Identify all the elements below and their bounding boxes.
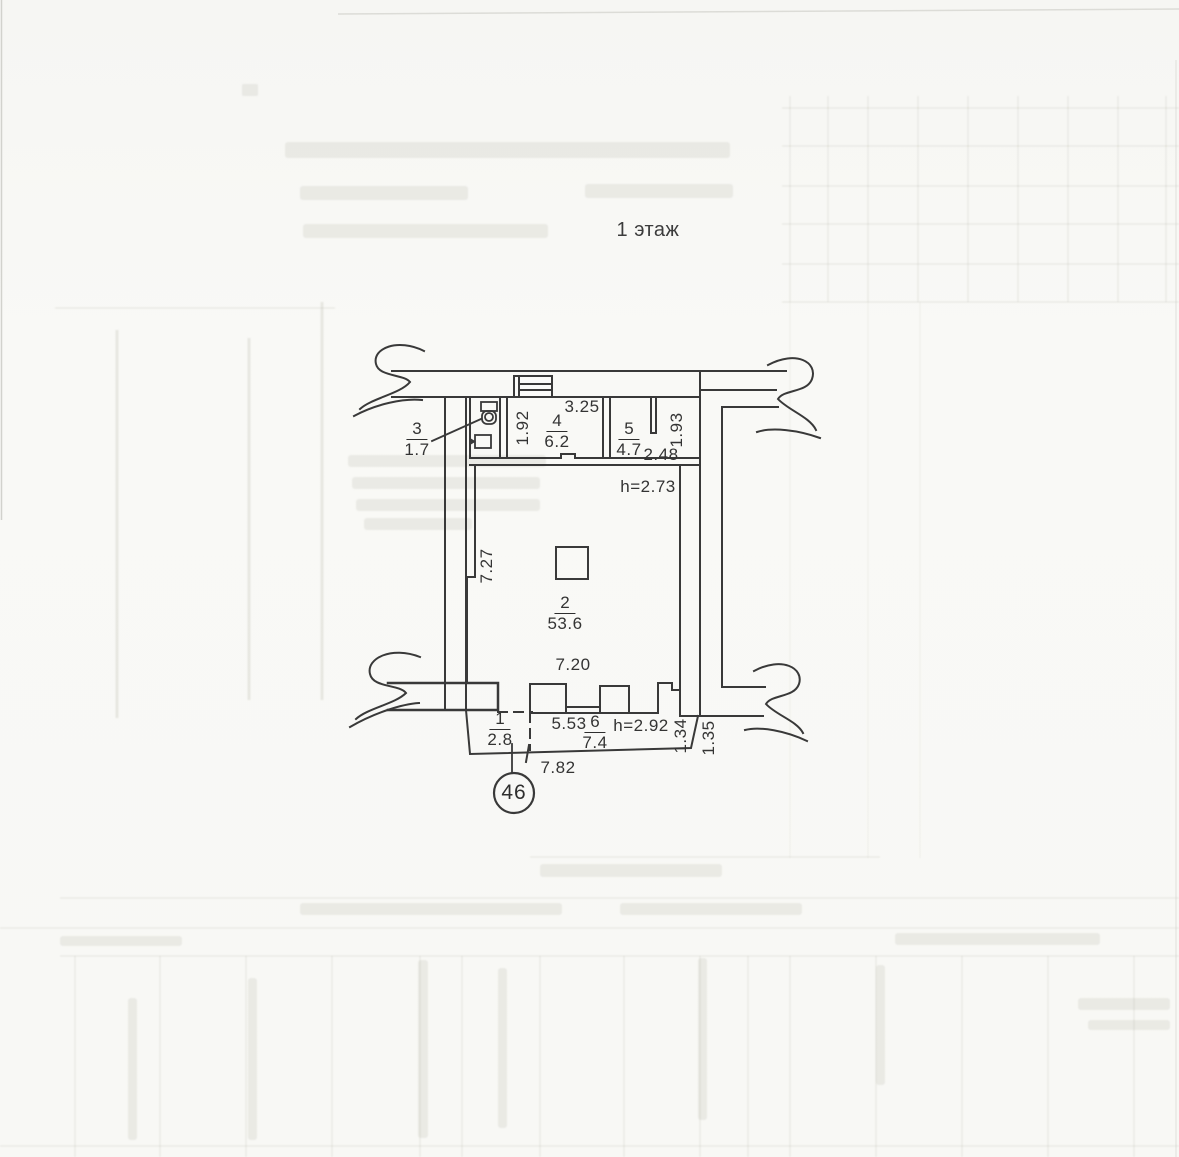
room-2-label: 2 53.6 xyxy=(547,594,582,633)
dim-3-25: 3.25 xyxy=(564,397,599,417)
dim-2-48: 2.48 xyxy=(643,445,678,465)
dim-5-53: 5.53 xyxy=(551,714,586,734)
floor-title: 1 этаж xyxy=(617,219,680,242)
dim-7-82: 7.82 xyxy=(540,758,575,778)
room-2-number: 2 xyxy=(554,594,575,614)
room-2-area: 53.6 xyxy=(547,614,582,634)
room-1-number: 1 xyxy=(489,710,510,730)
bleedthrough-grid xyxy=(0,96,1179,1157)
pillar-symbol xyxy=(556,547,588,579)
plan-linework xyxy=(0,0,1179,1157)
dim-1-35: 1.35 xyxy=(699,720,719,755)
apartment-badge-number: 46 xyxy=(501,781,526,805)
dim-1-92: 1.92 xyxy=(513,410,533,445)
room-3-label: 3 1.7 xyxy=(404,420,429,459)
room-5-number: 5 xyxy=(618,420,639,440)
room-6-area: 7.4 xyxy=(582,733,607,753)
scan-sheet: 1 этаж 3 1.7 4 6.2 5 4.7 2 53.6 1 2.8 6 … xyxy=(0,0,1179,1157)
scanned-floor-plan-page: { "document": { "floor_title": "1 этаж",… xyxy=(0,0,1179,1157)
height-main: h=2.73 xyxy=(620,477,675,497)
sink-symbol xyxy=(470,435,491,448)
paper-edge xyxy=(2,0,1179,1157)
dim-7-27: 7.27 xyxy=(477,548,497,583)
room-3-leader-line xyxy=(432,419,481,441)
room-3-number: 3 xyxy=(406,420,427,440)
room-1-area: 2.8 xyxy=(487,730,512,750)
room-5-label: 5 4.7 xyxy=(616,420,641,459)
room-6-number: 6 xyxy=(584,713,605,733)
room-3-area: 1.7 xyxy=(404,440,429,460)
room-4-area: 6.2 xyxy=(544,432,569,452)
room-5-area: 4.7 xyxy=(616,440,641,460)
room-4-label: 4 6.2 xyxy=(544,412,569,451)
bleedthrough-text xyxy=(60,84,1170,1140)
room-1-label: 1 2.8 xyxy=(487,710,512,749)
toilet-symbol xyxy=(481,402,497,424)
dim-1-93: 1.93 xyxy=(667,412,687,447)
dim-7-20: 7.20 xyxy=(555,655,590,675)
height-entry: h=2.92 xyxy=(613,716,668,736)
dim-1-34: 1.34 xyxy=(671,718,691,753)
